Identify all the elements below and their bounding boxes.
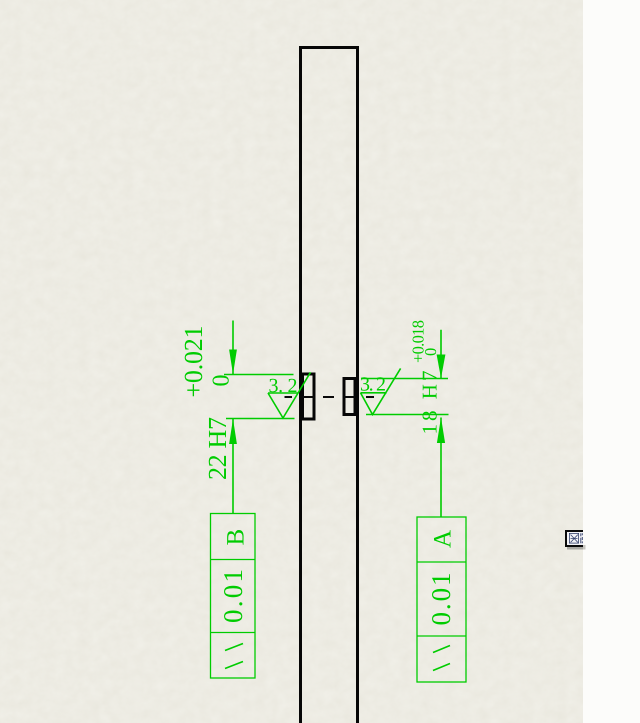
svg-text:A: A	[430, 530, 457, 548]
svg-text:0: 0	[209, 375, 235, 387]
svg-text:18 H7: 18 H7	[418, 371, 442, 435]
svg-text:0.01: 0.01	[426, 573, 456, 626]
svg-text:0: 0	[421, 348, 440, 356]
svg-text:22 H7: 22 H7	[203, 417, 232, 480]
svg-text:B: B	[223, 529, 250, 546]
svg-text:+0.021: +0.021	[179, 326, 208, 398]
svg-text:3. 2: 3. 2	[360, 374, 386, 396]
svg-text:3. 2: 3. 2	[269, 375, 298, 397]
svg-text:0.01: 0.01	[218, 569, 248, 623]
